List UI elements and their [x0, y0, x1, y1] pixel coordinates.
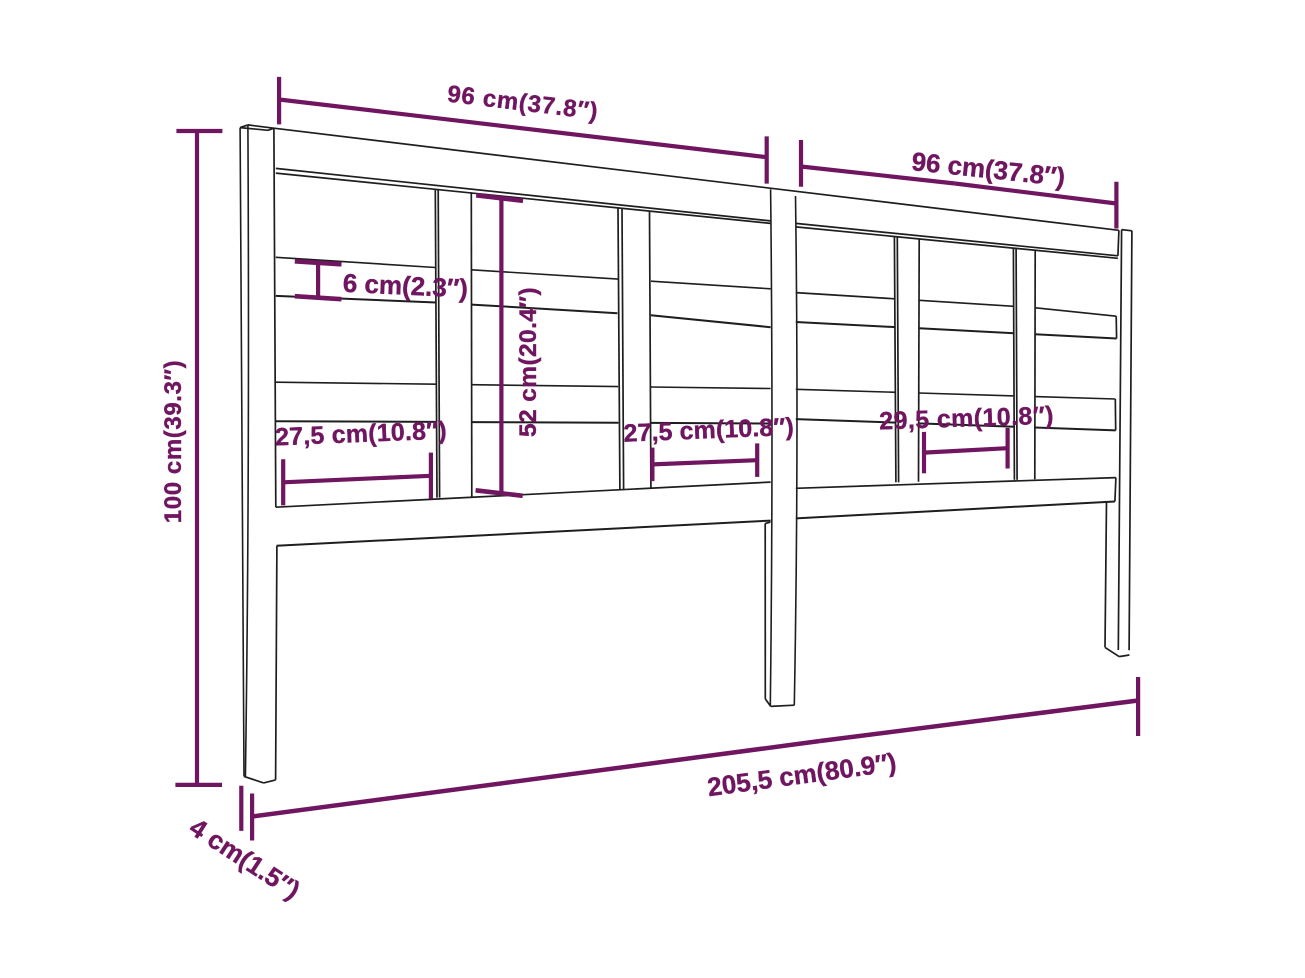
- svg-text:52 cm(20.4″): 52 cm(20.4″): [515, 287, 542, 437]
- svg-text:100 cm(39.3″): 100 cm(39.3″): [160, 360, 187, 523]
- svg-text:6 cm(2.3″): 6 cm(2.3″): [342, 268, 468, 304]
